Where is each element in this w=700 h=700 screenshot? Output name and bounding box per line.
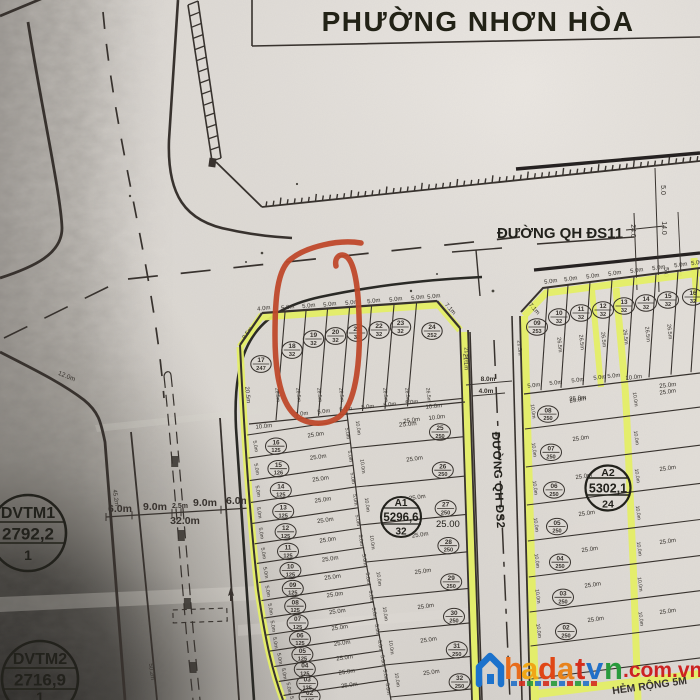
svg-text:32: 32 — [376, 332, 382, 338]
svg-text:32: 32 — [456, 675, 464, 682]
svg-text:32: 32 — [289, 352, 295, 358]
svg-text:250: 250 — [438, 472, 447, 478]
svg-text:11: 11 — [285, 545, 292, 552]
svg-text:d: d — [538, 651, 556, 686]
svg-text:125: 125 — [288, 591, 297, 597]
svg-text:25.00: 25.00 — [436, 519, 460, 530]
svg-text:250: 250 — [558, 599, 567, 605]
svg-text:32: 32 — [395, 527, 407, 538]
svg-text:07: 07 — [294, 616, 302, 623]
svg-text:DVTM1: DVTM1 — [1, 505, 55, 522]
svg-text:14: 14 — [277, 484, 285, 491]
svg-text:12: 12 — [282, 525, 290, 532]
svg-text:6.0m: 6.0m — [108, 503, 132, 515]
svg-text:250: 250 — [546, 454, 555, 460]
svg-text:13: 13 — [280, 505, 288, 512]
svg-text:10: 10 — [555, 310, 563, 317]
svg-text:21.5m: 21.5m — [515, 340, 522, 356]
svg-text:250: 250 — [441, 510, 450, 516]
svg-text:26: 26 — [439, 463, 447, 470]
svg-text:250: 250 — [549, 492, 558, 498]
svg-text:06: 06 — [296, 632, 304, 639]
svg-text:32: 32 — [397, 329, 403, 335]
svg-text:h: h — [504, 651, 522, 686]
svg-text:05: 05 — [553, 520, 561, 527]
svg-text:252: 252 — [427, 333, 437, 339]
svg-text:19: 19 — [310, 332, 318, 339]
svg-text:n: n — [604, 651, 622, 686]
svg-text:21.5m: 21.5m — [462, 347, 469, 363]
svg-text:09: 09 — [289, 582, 297, 589]
svg-text:125: 125 — [281, 534, 290, 540]
svg-text:250: 250 — [552, 529, 561, 535]
svg-text:250: 250 — [455, 684, 464, 690]
svg-text:5296,6: 5296,6 — [383, 512, 418, 524]
svg-text:02: 02 — [562, 625, 570, 632]
svg-text:2792,2: 2792,2 — [2, 525, 54, 544]
svg-text:13: 13 — [620, 299, 628, 306]
svg-text:5.0m: 5.0m — [691, 259, 700, 267]
svg-text:2.5m: 2.5m — [172, 503, 188, 510]
svg-text:32: 32 — [578, 315, 584, 321]
svg-text:10: 10 — [287, 564, 295, 571]
svg-text:253: 253 — [532, 329, 541, 335]
svg-text:32: 32 — [621, 308, 627, 314]
svg-text:24: 24 — [428, 324, 436, 331]
svg-text:250: 250 — [447, 584, 456, 590]
svg-text:04: 04 — [301, 663, 309, 670]
svg-text:1: 1 — [36, 689, 44, 700]
svg-text:31: 31 — [453, 643, 461, 650]
svg-text:07: 07 — [547, 446, 555, 453]
svg-text:126: 126 — [274, 471, 283, 477]
svg-text:32: 32 — [310, 341, 316, 347]
svg-text:DVTM2: DVTM2 — [13, 651, 67, 668]
svg-text:125: 125 — [276, 492, 285, 498]
svg-text:250: 250 — [561, 634, 570, 640]
svg-text:A1: A1 — [395, 498, 408, 509]
svg-text:8.0m: 8.0m — [481, 376, 496, 383]
svg-text:1: 1 — [24, 547, 32, 563]
svg-text:28: 28 — [445, 539, 453, 546]
svg-text:t: t — [575, 651, 585, 686]
svg-text:125: 125 — [283, 553, 292, 559]
svg-text:32.0m: 32.0m — [170, 515, 200, 527]
svg-text:125: 125 — [291, 608, 300, 614]
svg-text:125: 125 — [293, 625, 302, 631]
svg-text:5302,1: 5302,1 — [589, 482, 627, 496]
svg-text:5.0: 5.0 — [659, 185, 666, 195]
svg-text:06: 06 — [550, 483, 558, 490]
svg-text:A2: A2 — [601, 467, 615, 479]
svg-text:27: 27 — [442, 502, 450, 509]
svg-text:125: 125 — [279, 513, 288, 519]
svg-text:32: 32 — [643, 305, 649, 311]
svg-text:11: 11 — [578, 306, 585, 313]
svg-text:09: 09 — [533, 320, 541, 327]
svg-text:32: 32 — [600, 312, 606, 318]
svg-text:08: 08 — [292, 599, 300, 606]
svg-text:2716,9: 2716,9 — [14, 671, 66, 690]
svg-text:250: 250 — [555, 564, 564, 570]
svg-text:30: 30 — [450, 610, 458, 617]
svg-text:250: 250 — [452, 652, 461, 658]
svg-text:32: 32 — [556, 319, 562, 325]
svg-text:29: 29 — [448, 575, 456, 582]
svg-text:04: 04 — [556, 555, 564, 562]
svg-text:250: 250 — [543, 416, 552, 422]
svg-text:15: 15 — [664, 293, 672, 300]
svg-text:4.0m: 4.0m — [479, 388, 494, 395]
svg-text:32: 32 — [332, 338, 338, 344]
svg-text:16: 16 — [272, 439, 280, 446]
svg-text:16: 16 — [689, 290, 697, 297]
svg-text:24.0: 24.0 — [629, 224, 636, 238]
svg-text:250: 250 — [449, 619, 458, 625]
svg-text:32: 32 — [665, 302, 671, 308]
svg-text:a: a — [521, 651, 539, 686]
svg-text:24: 24 — [602, 499, 614, 511]
svg-text:25: 25 — [436, 425, 444, 432]
svg-text:08: 08 — [544, 407, 552, 414]
svg-text:32: 32 — [690, 299, 696, 305]
svg-text:14.0: 14.0 — [660, 221, 667, 235]
svg-text:9.0m: 9.0m — [143, 501, 167, 513]
svg-text:9.0m: 9.0m — [193, 497, 217, 509]
svg-text:.com.vn: .com.vn — [623, 659, 700, 682]
svg-text:247: 247 — [256, 366, 266, 372]
svg-text:125: 125 — [286, 572, 295, 578]
svg-text:03: 03 — [559, 591, 567, 598]
svg-text:17: 17 — [257, 357, 265, 364]
svg-text:250: 250 — [435, 434, 444, 440]
svg-text:PHƯỜNG NHƠN HÒA: PHƯỜNG NHƠN HÒA — [322, 6, 635, 37]
svg-text:23: 23 — [397, 320, 405, 327]
svg-text:5.0m: 5.0m — [288, 696, 296, 700]
svg-text:03: 03 — [304, 677, 312, 684]
svg-text:14: 14 — [642, 296, 650, 303]
svg-text:02: 02 — [306, 690, 314, 697]
svg-text:v: v — [586, 651, 604, 686]
svg-text:250: 250 — [444, 548, 453, 554]
svg-text:15: 15 — [275, 462, 283, 469]
svg-text:125: 125 — [271, 448, 280, 454]
svg-text:a: a — [557, 651, 575, 686]
svg-text:12: 12 — [599, 303, 607, 310]
svg-text:20: 20 — [332, 329, 340, 336]
svg-text:22: 22 — [375, 323, 383, 330]
svg-text:05: 05 — [299, 648, 307, 655]
svg-text:18: 18 — [288, 343, 296, 350]
